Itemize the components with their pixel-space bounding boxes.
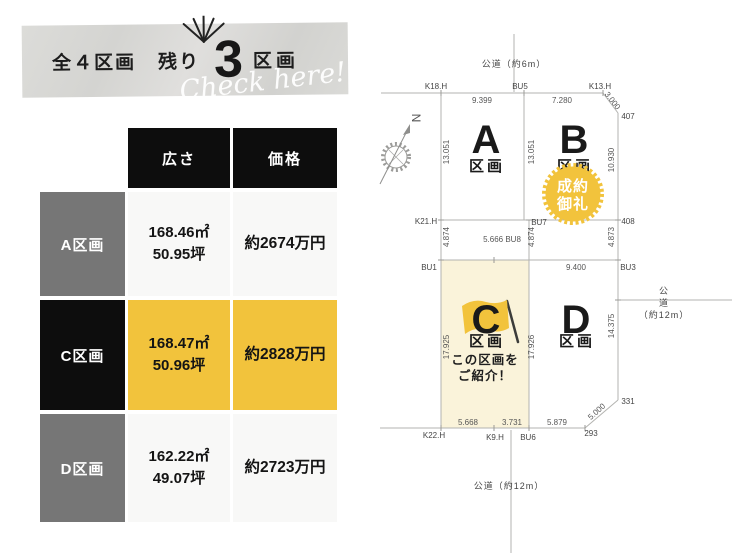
dim-top-b: 7.280 (552, 96, 573, 105)
dim-left-c: 17.925 (442, 334, 451, 359)
svg-text:公: 公 (659, 286, 669, 296)
plot-d: D 区画 (559, 298, 595, 350)
plot-c-promo-line2: ご紹介！ (458, 368, 512, 383)
dim-mid-strip: 4.874 (527, 226, 536, 247)
dim-right-strip: 4.873 (607, 226, 616, 247)
plot-c-promo-line1: この区画を (451, 353, 519, 367)
dim-right-b: 10.930 (607, 147, 616, 172)
point-k13h: K13.H (589, 82, 611, 91)
point-bu1: BU1 (421, 263, 437, 272)
point-bu6: BU6 (520, 433, 536, 442)
road-bottom-label: 公道（約12m） (474, 480, 545, 491)
plot-c-kukaku: 区画 (469, 333, 505, 350)
plot-d-kukaku: 区画 (559, 333, 595, 350)
point-407: 407 (621, 112, 635, 121)
plot-a-kukaku: 区画 (469, 158, 505, 175)
svg-text:（約12m）: （約12m） (639, 309, 690, 320)
dim-top-a: 9.399 (472, 96, 493, 105)
dim-mid-cd: 17.926 (527, 334, 536, 359)
point-bu5: BU5 (512, 82, 528, 91)
point-bu7: BU7 (531, 218, 547, 227)
point-293: 293 (584, 429, 598, 438)
dim-left-strip: 4.874 (442, 226, 451, 247)
dim-diag-tr: 3.000 (603, 90, 623, 112)
dim-right-d: 14.375 (607, 313, 616, 338)
dim-mid-ab: 13.051 (527, 139, 536, 164)
sold-badge-line2: 御礼 (556, 195, 589, 213)
point-k21h: K21.H (415, 217, 437, 226)
sold-badge: 成約 御礼 (544, 165, 602, 223)
compass-n-label: N (409, 114, 423, 123)
dim-bot-c2: 3.731 (502, 418, 523, 427)
road-right-label: 公 道 （約12m） (639, 286, 690, 320)
plot-a: A 区画 (469, 118, 505, 175)
point-k9h: K9.H (486, 433, 504, 442)
plot-b-letter: B (560, 118, 589, 162)
point-408: 408 (621, 217, 635, 226)
boundary-lines (380, 34, 732, 553)
sold-badge-line1: 成約 (557, 177, 589, 195)
dim-left-a: 13.051 (442, 139, 451, 164)
plot-map: N 公道（約6m） 公道（約12m） 公 道 （約12m） K18.H BU5 … (0, 0, 739, 554)
point-331: 331 (621, 397, 635, 406)
flyer-canvas: 全４区画 残り 3 区画 Check here! 広さ 価格 A区画 168.4… (0, 0, 739, 554)
point-k18h: K18.H (425, 82, 447, 91)
dim-top-d: 9.400 (566, 263, 587, 272)
plot-b: B 区画 成約 御礼 (544, 118, 602, 223)
plot-a-letter: A (472, 118, 501, 162)
point-bu3: BU3 (620, 263, 636, 272)
dim-bot-d: 5.879 (547, 418, 568, 427)
compass-north-icon: N (380, 114, 423, 184)
svg-text:道: 道 (659, 297, 669, 308)
point-k22h: K22.H (423, 431, 445, 440)
road-top-label: 公道（約6m） (482, 58, 547, 69)
dim-bot-c1: 5.668 (458, 418, 479, 427)
dim-strip-width: 5.666 BU8 (483, 235, 521, 244)
